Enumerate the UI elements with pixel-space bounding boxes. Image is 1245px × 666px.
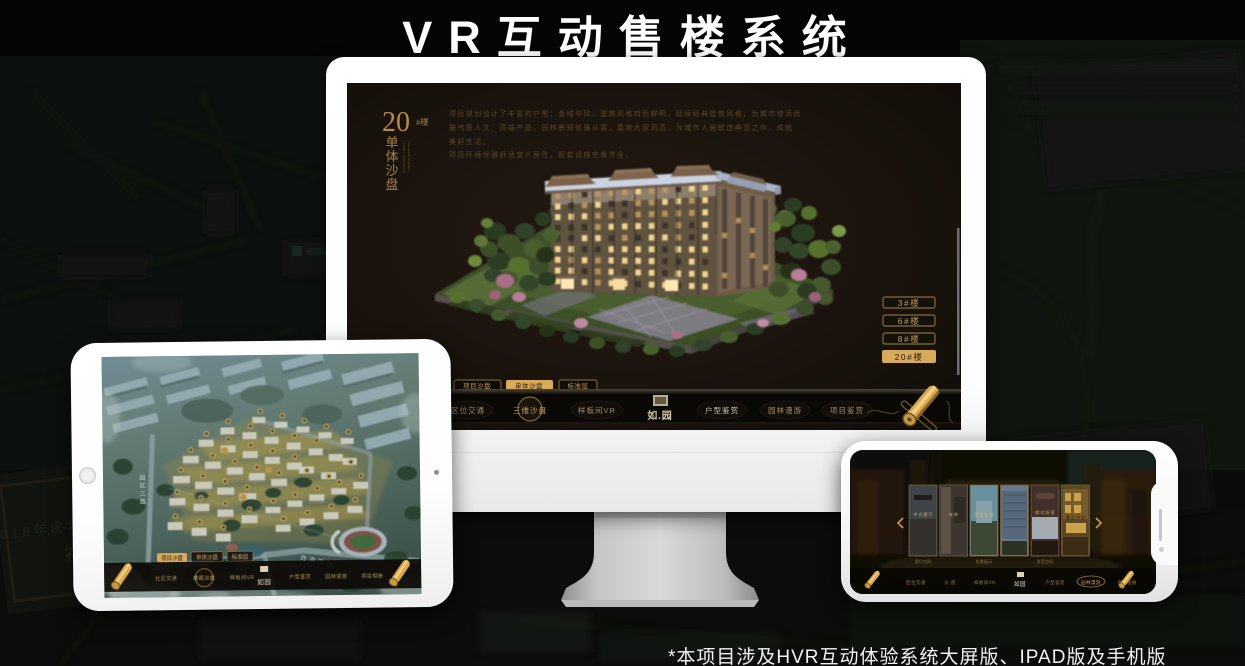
svg-text:样板间VR: 样板间VR — [230, 574, 255, 581]
svg-text:如园: 如园 — [257, 577, 271, 586]
svg-text:户型鉴赏: 户型鉴赏 — [1045, 579, 1065, 586]
svg-text:标准层: 标准层 — [232, 553, 249, 561]
svg-text:户型鉴赏: 户型鉴赏 — [705, 405, 739, 415]
svg-text:藏 品 书 房: 藏 品 书 房 — [1066, 514, 1085, 520]
svg-text:项目鉴赏: 项目鉴赏 — [830, 405, 864, 415]
svg-text:3#楼: 3#楼 — [898, 298, 920, 308]
svg-text:三维沙盘: 三维沙盘 — [513, 405, 547, 415]
svg-text:区位交通: 区位交通 — [451, 405, 485, 415]
svg-text:体: 体 — [385, 149, 398, 164]
svg-text:客厅空间: 客厅空间 — [915, 558, 932, 565]
svg-text:项目环境优雅舒适宜人居住，配套设施完善齐全。: 项目环境优雅舒适宜人居住，配套设施完善齐全。 — [449, 150, 634, 159]
svg-text:THE GOOD GARDEN: THE GOOD GARDEN — [407, 141, 411, 171]
svg-text:TWENTY SAND TABLE: TWENTY SAND TABLE — [402, 141, 406, 173]
svg-text:沙 盘: 沙 盘 — [944, 579, 956, 585]
svg-text:项 目 实 景: 项 目 实 景 — [974, 511, 993, 517]
svg-text:园林漫游: 园林漫游 — [768, 405, 802, 415]
svg-text:标准层: 标准层 — [568, 381, 589, 390]
svg-text:如园: 如园 — [1014, 580, 1026, 588]
svg-text:区位交通: 区位交通 — [906, 579, 926, 586]
svg-text:单: 单 — [385, 135, 398, 150]
svg-text:欧 式 卧 室: 欧 式 卧 室 — [1035, 509, 1054, 515]
svg-text:社区交通: 社区交通 — [155, 575, 177, 582]
svg-text:实景展示: 实景展示 — [976, 558, 993, 565]
svg-text:8#楼: 8#楼 — [898, 334, 920, 344]
svg-text:项目沙盘: 项目沙盘 — [161, 554, 184, 562]
svg-text:样板间VR: 样板间VR — [578, 405, 616, 415]
svg-text:美好生活。: 美好生活。 — [449, 137, 491, 146]
svg-text:项目相册: 项目相册 — [361, 573, 383, 580]
svg-text:园林漫游: 园林漫游 — [1081, 579, 1101, 586]
svg-text:20#楼: 20#楼 — [895, 352, 924, 362]
svg-text:楼栋沙盘: 楼栋沙盘 — [193, 575, 215, 582]
svg-text:6#楼: 6#楼 — [898, 316, 920, 326]
svg-text:样板间VR: 样板间VR — [974, 579, 996, 586]
svg-text:单体沙盘: 单体沙盘 — [515, 381, 543, 390]
svg-text:#楼: #楼 — [416, 117, 429, 127]
svg-text:卧室空间: 卧室空间 — [1037, 558, 1054, 565]
svg-text:沙: 沙 — [385, 163, 398, 178]
svg-text:中 式 客 厅: 中 式 客 厅 — [913, 511, 932, 517]
svg-text:车 库: 车 库 — [949, 511, 958, 517]
svg-text:如.园: 如.园 — [647, 409, 673, 422]
svg-text:项目规划设计了丰富的户型：金域华风，建筑风格特色鲜明，延续经: 项目规划设计了丰富的户型：金域华风，建筑风格特色鲜明，延续经典建筑风格，为城市增… — [449, 109, 802, 118]
svg-text:雅气质人文：高端产品，园林景观优雅从容，尊崇大家风范，为城市: 雅气质人文：高端产品，园林景观优雅从容，尊崇大家风范，为城市人居塑造典范之作，成… — [449, 123, 793, 132]
svg-text:项目沙盘: 项目沙盘 — [463, 381, 491, 390]
svg-text:户型鉴赏: 户型鉴赏 — [289, 573, 311, 580]
svg-text:园林漫游: 园林漫游 — [325, 573, 347, 580]
svg-text:盘: 盘 — [385, 177, 398, 192]
svg-text:单体沙盘: 单体沙盘 — [196, 553, 219, 561]
svg-text:20: 20 — [382, 107, 410, 138]
